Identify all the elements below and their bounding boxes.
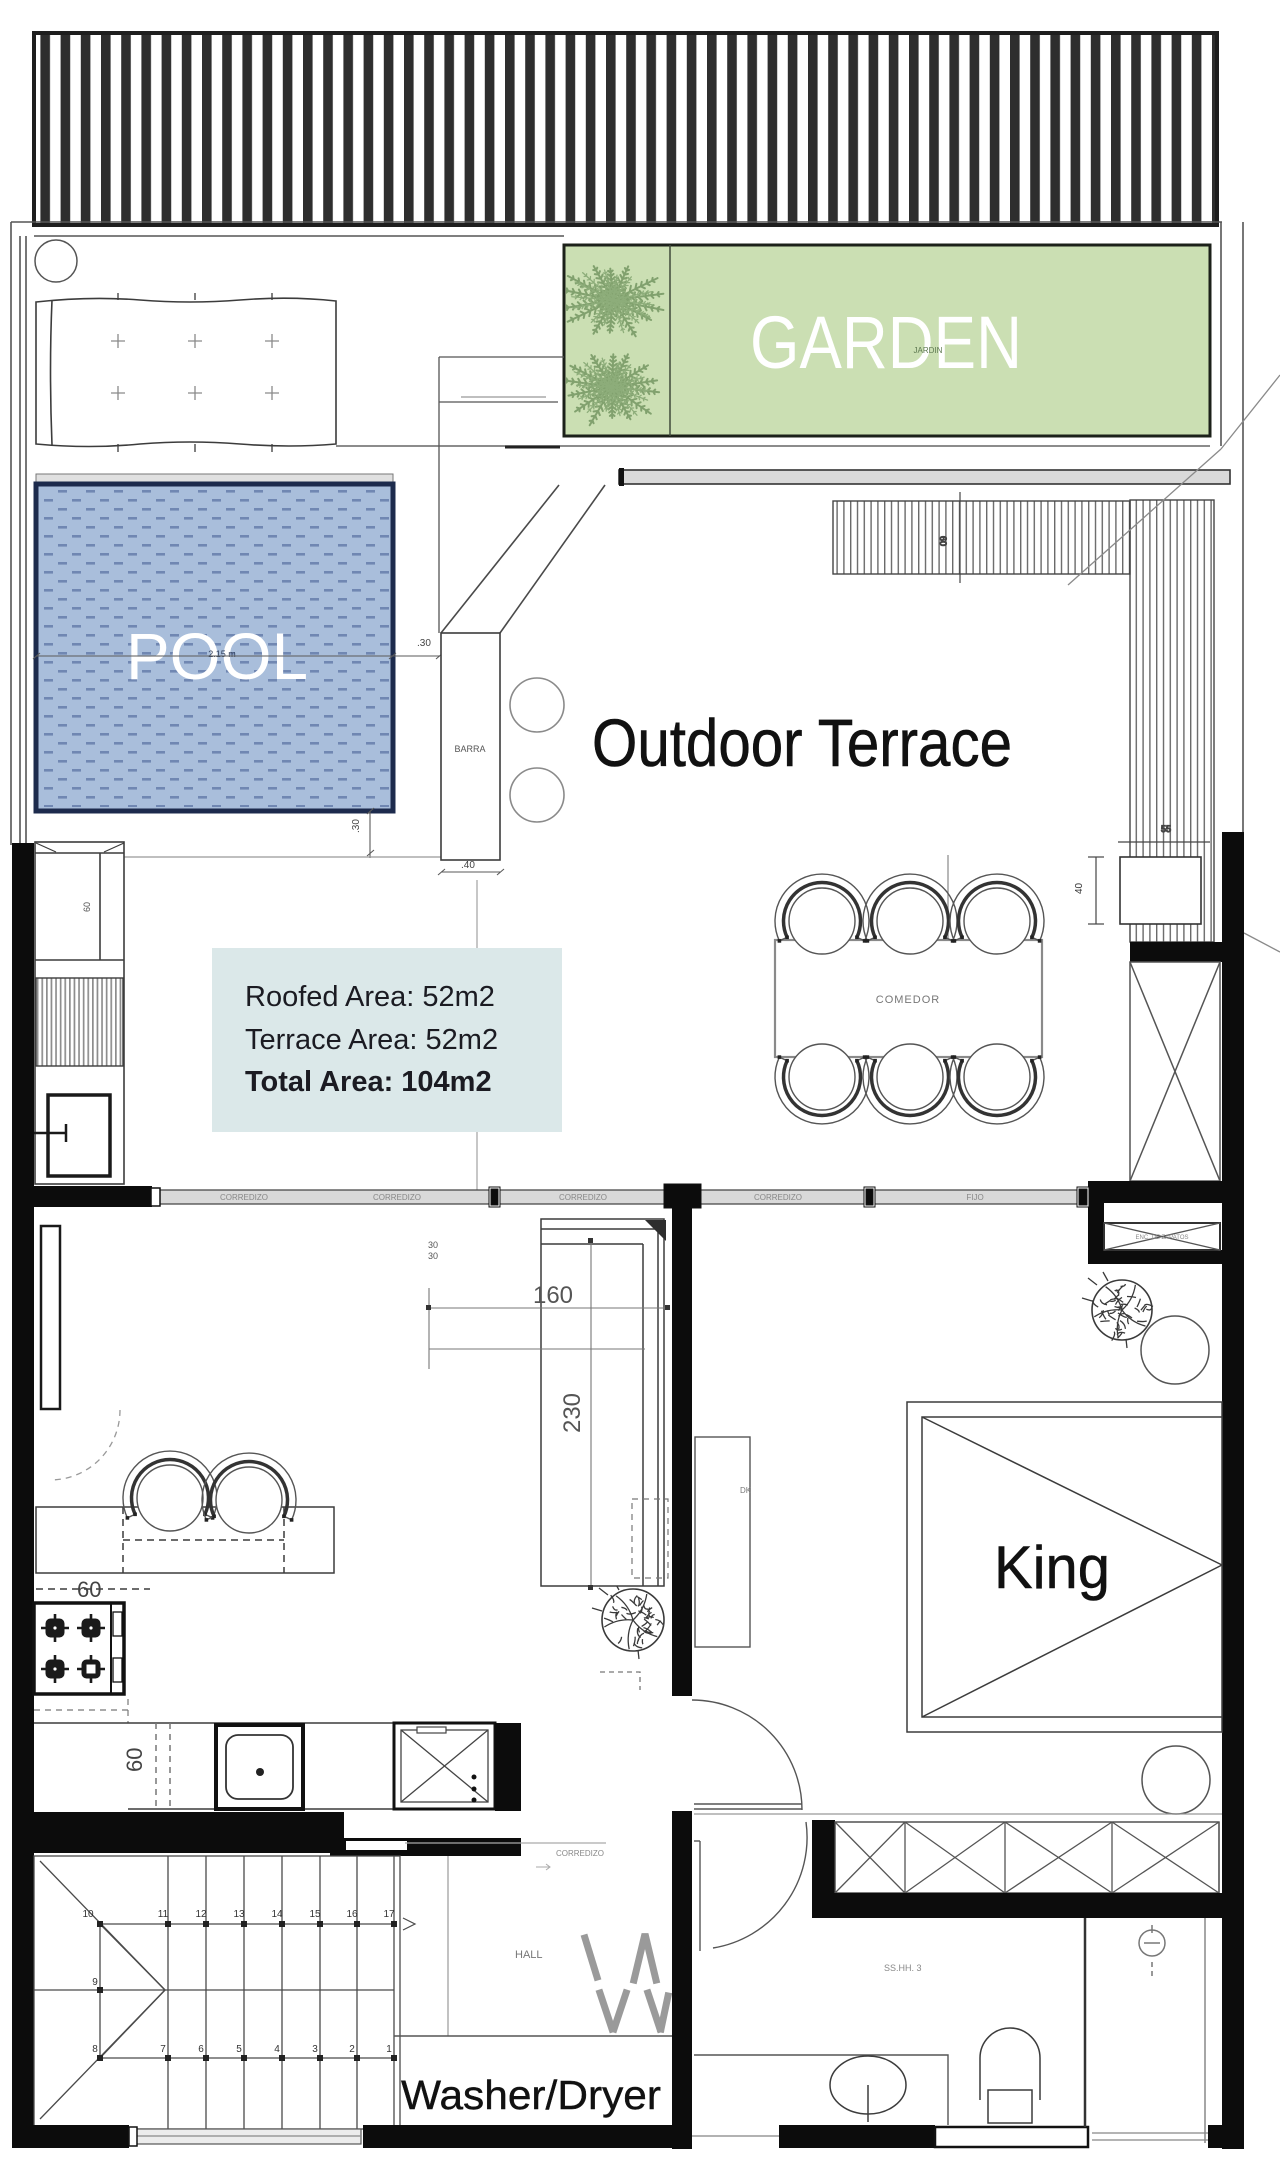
svg-text:11: 11: [158, 1909, 169, 1920]
svg-text:ENC. DE ZAPATOS: ENC. DE ZAPATOS: [1135, 1235, 1188, 1241]
svg-text:30: 30: [428, 1251, 438, 1261]
svg-text:DK: DK: [740, 1486, 752, 1495]
svg-text:40: 40: [1074, 882, 1085, 894]
svg-text:60: 60: [122, 1748, 147, 1772]
svg-text:5: 5: [236, 2044, 242, 2055]
svg-text:6: 6: [198, 2044, 204, 2055]
svg-text:Terrace Area: 52m2: Terrace Area: 52m2: [245, 1024, 498, 1056]
svg-text:14: 14: [271, 1909, 283, 1920]
svg-text:9: 9: [92, 1977, 98, 1988]
svg-text:8: 8: [92, 2044, 98, 2055]
svg-text:1: 1: [386, 2044, 392, 2055]
svg-text:.40: .40: [461, 860, 475, 871]
svg-text:4: 4: [274, 2044, 280, 2055]
svg-text:FIJO: FIJO: [966, 1193, 983, 1202]
svg-text:CORREDIZO: CORREDIZO: [754, 1193, 802, 1202]
svg-text:30: 30: [428, 1240, 438, 1250]
svg-text:16: 16: [346, 1909, 358, 1920]
svg-text:Washer/Dryer: Washer/Dryer: [401, 2072, 661, 2118]
svg-text:7: 7: [160, 2044, 166, 2055]
svg-text:55: 55: [1161, 824, 1171, 834]
svg-text:CORREDIZO: CORREDIZO: [373, 1193, 421, 1202]
svg-text:CORREDIZO: CORREDIZO: [220, 1193, 268, 1202]
svg-text:2.15 m: 2.15 m: [208, 649, 236, 659]
svg-text:HALL: HALL: [515, 1949, 543, 1961]
svg-text:SS.HH. 3: SS.HH. 3: [884, 1963, 922, 1973]
svg-text:160: 160: [533, 1282, 573, 1309]
svg-text:230: 230: [559, 1393, 586, 1433]
svg-text:GARDEN: GARDEN: [750, 301, 1022, 384]
svg-text:Total Area: 104m2: Total Area: 104m2: [245, 1066, 492, 1098]
svg-text:15: 15: [309, 1909, 321, 1920]
svg-text:60: 60: [77, 1577, 101, 1602]
svg-text:2: 2: [349, 2044, 355, 2055]
svg-text:King: King: [994, 1534, 1110, 1601]
svg-text:10: 10: [82, 1909, 94, 1920]
svg-text:COMEDOR: COMEDOR: [876, 994, 940, 1006]
svg-text:CORREDIZO: CORREDIZO: [559, 1193, 607, 1202]
svg-text:13: 13: [233, 1909, 245, 1920]
svg-text:CORREDIZO: CORREDIZO: [556, 1849, 604, 1858]
svg-text:17: 17: [383, 1909, 395, 1920]
svg-text:JARDIN: JARDIN: [914, 346, 943, 355]
svg-text:12: 12: [195, 1909, 207, 1920]
svg-text:Roofed Area: 52m2: Roofed Area: 52m2: [245, 981, 495, 1013]
svg-text:Outdoor Terrace: Outdoor Terrace: [592, 706, 1012, 781]
svg-text:60: 60: [82, 902, 92, 912]
svg-text:3: 3: [312, 2044, 318, 2055]
svg-text:60: 60: [938, 536, 948, 546]
svg-text:.30: .30: [417, 638, 431, 649]
svg-text:BARRA: BARRA: [454, 744, 485, 754]
svg-text:.30: .30: [351, 819, 362, 833]
